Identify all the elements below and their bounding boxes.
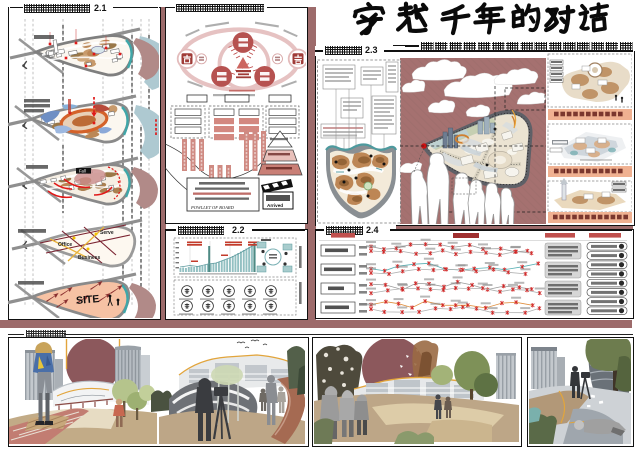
svg-text:SITE: SITE — [76, 293, 100, 307]
svg-text:Business: Business — [78, 255, 100, 261]
svg-text:Arrived: Arrived — [267, 203, 283, 208]
svg-text:POWLLET OF BOARD: POWLLET OF BOARD — [190, 205, 235, 210]
svg-text:Office: Office — [58, 242, 72, 248]
svg-text:Fall: Fall — [79, 169, 86, 174]
svg-text:Serve: Serve — [100, 230, 114, 236]
